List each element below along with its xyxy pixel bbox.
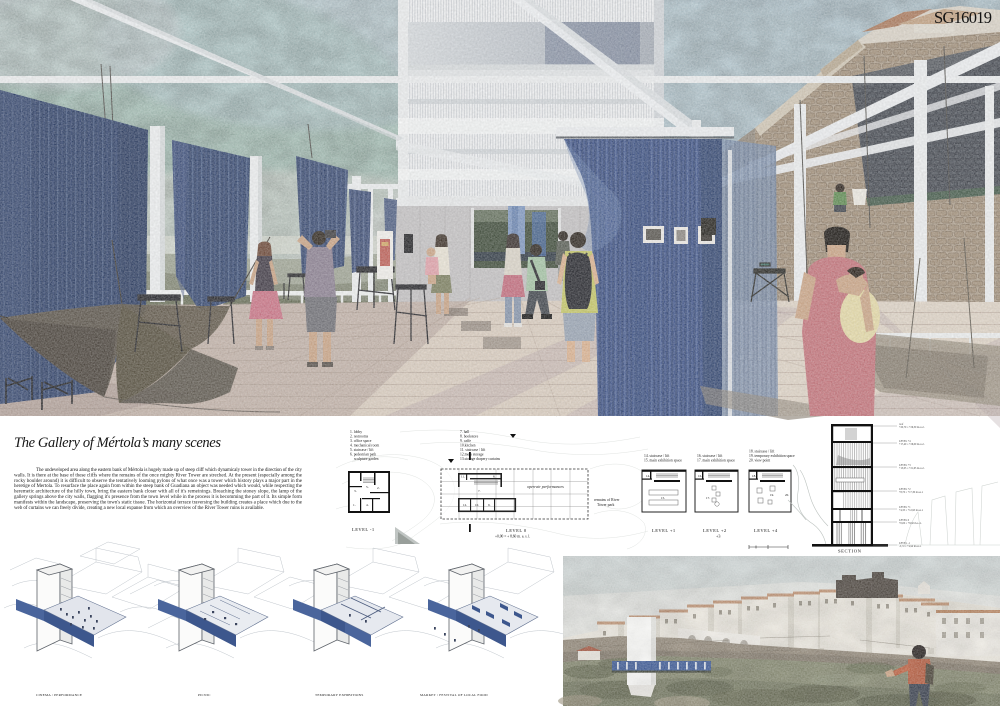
- svg-text:LEVEL -1: LEVEL -1: [352, 527, 375, 532]
- svg-text:LEVEL +2: LEVEL +2: [703, 528, 727, 533]
- svg-text:MARKET / FESTIVAL OF LOCAL FOO: MARKET / FESTIVAL OF LOCAL FOOD: [420, 693, 488, 697]
- svg-text:1.: 1.: [353, 503, 356, 507]
- svg-text:+20,70 = +29,30 m.a.s.l.: +20,70 = +29,30 m.a.s.l.: [899, 426, 925, 429]
- svg-text:LEVEL 0: LEVEL 0: [506, 528, 527, 533]
- svg-text:20.: 20.: [785, 493, 789, 497]
- svg-text:11.: 11.: [461, 474, 465, 478]
- svg-text:3. office space: 3. office space: [350, 439, 372, 443]
- svg-text:11. staircase / lift: 11. staircase / lift: [460, 448, 485, 452]
- svg-text:web of curtains we can freely: web of curtains we can freely divide, cr…: [14, 506, 264, 511]
- svg-text:4.: 4.: [366, 503, 369, 507]
- svg-text:sculpture garden: sculpture garden: [354, 457, 379, 461]
- svg-text:16. staircase / lift: 16. staircase / lift: [697, 454, 722, 458]
- svg-text:2.: 2.: [377, 486, 380, 490]
- svg-text:4. mechanical room: 4. mechanical room: [350, 444, 379, 448]
- svg-text:open-air performances: open-air performances: [527, 484, 564, 489]
- svg-text:Tower park: Tower park: [597, 503, 614, 507]
- svg-text:15.: 15.: [661, 496, 665, 500]
- svg-text:+17,40 = +26,00 m.a.s.l.: +17,40 = +26,00 m.a.s.l.: [899, 443, 925, 446]
- svg-text:19. temporary exhibition space: 19. temporary exhibition space: [749, 454, 795, 458]
- svg-text:6. pedestrian path: 6. pedestrian path: [350, 453, 376, 457]
- svg-text:14. staircase / lift: 14. staircase / lift: [644, 454, 669, 458]
- svg-text:+4,35 = +12,95 m.a.s.l.: +4,35 = +12,95 m.a.s.l.: [899, 509, 924, 512]
- svg-text:CINEMA / PERFORMANCE: CINEMA / PERFORMANCE: [36, 693, 82, 697]
- svg-text:10.kitchen: 10.kitchen: [460, 444, 476, 448]
- svg-text:-3,70 = +4,90 m.a.s.l.: -3,70 = +4,90 m.a.s.l.: [899, 545, 922, 548]
- svg-text:7.: 7.: [478, 489, 481, 493]
- svg-text:LEVEL +4: LEVEL +4: [754, 528, 778, 533]
- svg-text:10.: 10.: [475, 503, 479, 507]
- svg-text:14.: 14.: [646, 474, 650, 478]
- svg-text:9.: 9.: [488, 503, 491, 507]
- svg-text:+0,00 = +8,60 m.a.s.l.: +0,00 = +8,60 m.a.s.l.: [899, 522, 922, 525]
- svg-text:1. lobby: 1. lobby: [350, 430, 362, 434]
- svg-text:TEMPORARY EXHIBITIONS: TEMPORARY EXHIBITIONS: [315, 693, 364, 697]
- svg-text:17. main exhibition space: 17. main exhibition space: [697, 459, 735, 463]
- svg-text:remains of River: remains of River: [594, 498, 620, 502]
- svg-text:+13,05 = +21,65 m.a.s.l.: +13,05 = +21,65 m.a.s.l.: [899, 467, 925, 470]
- svg-text:The Gallery of Mértola’s many: The Gallery of Mértola’s many scenes: [14, 435, 221, 451]
- svg-text:+8,70 = +17,30 m.a.s.l.: +8,70 = +17,30 m.a.s.l.: [899, 491, 924, 494]
- svg-text:13.storage drapery curtains: 13.storage drapery curtains: [460, 457, 501, 461]
- svg-text:8. bookstore: 8. bookstore: [460, 435, 479, 439]
- svg-text:manifests within the landscape: manifests within the landscape, preservi…: [14, 500, 303, 505]
- svg-text:3.: 3.: [354, 489, 357, 493]
- svg-text:gallery springs above the city: gallery springs above the city walls, fl…: [14, 495, 302, 500]
- svg-text:5.: 5.: [366, 485, 369, 489]
- svg-text:LEVEL +1: LEVEL +1: [652, 528, 676, 533]
- svg-text:18.: 18.: [752, 474, 756, 478]
- svg-text:8.: 8.: [493, 474, 496, 478]
- svg-text:9. caffe: 9. caffe: [460, 439, 471, 443]
- svg-text:5. staircase / lift: 5. staircase / lift: [350, 448, 374, 452]
- svg-text:15. main exhibition space: 15. main exhibition space: [644, 459, 682, 463]
- svg-text:16.: 16.: [698, 474, 702, 478]
- svg-text:19.: 19.: [770, 493, 774, 497]
- svg-text:20. view point: 20. view point: [749, 459, 770, 463]
- svg-text:heremetic architecture of the: heremetic architecture of the hilly town…: [14, 490, 303, 495]
- svg-text:SG16019: SG16019: [934, 8, 992, 27]
- svg-text:17.: 17.: [706, 496, 710, 500]
- svg-text:12.: 12.: [463, 503, 467, 507]
- svg-text:12.mess storage: 12.mess storage: [460, 453, 484, 457]
- svg-text:SECTION: SECTION: [838, 549, 862, 554]
- svg-text:heretige of Mertola. To resurf: heretige of Mertola. To resurface the pl…: [14, 484, 303, 489]
- svg-text:PICNIC: PICNIC: [198, 693, 211, 697]
- svg-text:+3: +3: [716, 534, 720, 539]
- svg-text:7. hall: 7. hall: [460, 430, 469, 434]
- svg-text:walls. It is there at the base: walls. It is there at the base of these …: [14, 473, 303, 478]
- svg-text:rocky boulder around) it is di: rocky boulder around) it is difficult to…: [14, 479, 303, 484]
- svg-text:The undeveloped area along the: The undeveloped area along the eastern b…: [36, 468, 303, 473]
- svg-text:2. restrooms: 2. restrooms: [350, 435, 369, 439]
- svg-text:18. staircase / lift: 18. staircase / lift: [749, 450, 774, 454]
